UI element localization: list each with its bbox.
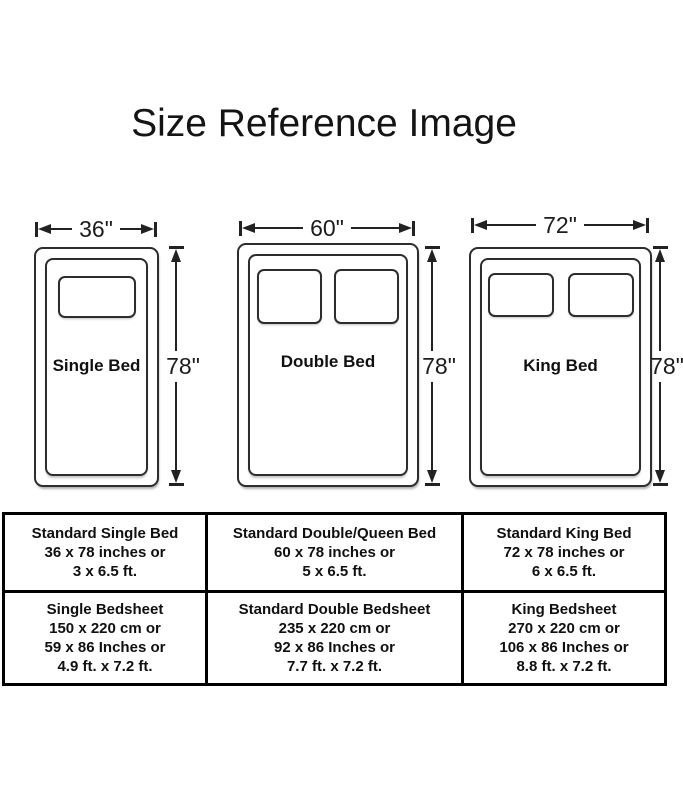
- table-cell-line: Standard King Bed: [496, 524, 631, 543]
- height-label: 78": [650, 351, 683, 382]
- width-label: 72": [536, 212, 584, 239]
- pillow-row: [47, 276, 146, 318]
- table-cell-line: 270 x 220 cm or: [508, 619, 620, 638]
- table-cell-line: 6 x 6.5 ft.: [532, 562, 596, 581]
- dim-line: [431, 382, 433, 471]
- arrowhead-down-icon: [427, 470, 437, 483]
- arrowhead-right-icon: [633, 220, 646, 230]
- size-reference-page: Size Reference Image 36" Single Bed 78": [0, 0, 683, 800]
- pillow: [58, 276, 136, 318]
- table-cell-line: Standard Single Bed: [32, 524, 179, 543]
- dim-end-cap: [412, 221, 415, 236]
- pillow: [257, 269, 322, 324]
- height-label: 78": [422, 351, 456, 382]
- table-cell-line: 59 x 86 Inches or: [45, 638, 166, 657]
- page-title: Size Reference Image: [0, 102, 648, 146]
- arrowhead-left-icon: [38, 224, 51, 234]
- table-cell-line: Standard Double/Queen Bed: [233, 524, 436, 543]
- width-dimension-arrow: 60": [239, 215, 415, 241]
- table-cell-line: 4.9 ft. x 7.2 ft.: [57, 657, 152, 676]
- dim-line: [120, 228, 141, 230]
- bed-label: Single Bed: [47, 356, 146, 376]
- height-label: 78": [166, 351, 200, 382]
- dim-line: [351, 227, 399, 229]
- mattress: Single Bed: [45, 258, 148, 476]
- arrowhead-down-icon: [171, 470, 181, 483]
- table-cell-standard-king-bed: Standard King Bed 72 x 78 inches or 6 x …: [464, 515, 664, 593]
- table-cell-king-bedsheet: King Bedsheet 270 x 220 cm or 106 x 86 I…: [464, 593, 664, 683]
- table-cell-standard-single-bed: Standard Single Bed 36 x 78 inches or 3 …: [5, 515, 208, 593]
- pillow: [334, 269, 399, 324]
- table-cell-line: Standard Double Bedsheet: [239, 600, 431, 619]
- table-cell-line: 5 x 6.5 ft.: [302, 562, 366, 581]
- table-cell-line: 72 x 78 inches or: [504, 543, 625, 562]
- height-dimension-arrow: 78": [640, 246, 680, 486]
- arrowhead-up-icon: [655, 249, 665, 262]
- dim-end-cap: [169, 483, 184, 486]
- dim-end-cap: [653, 483, 668, 486]
- dim-line: [431, 262, 433, 351]
- bed-label: Double Bed: [250, 352, 406, 372]
- size-table: Standard Single Bed 36 x 78 inches or 3 …: [2, 512, 667, 686]
- dim-line: [659, 382, 661, 471]
- arrowhead-up-icon: [427, 249, 437, 262]
- table-cell-line: King Bedsheet: [511, 600, 616, 619]
- arrowhead-right-icon: [399, 223, 412, 233]
- table-cell-line: 8.8 ft. x 7.2 ft.: [516, 657, 611, 676]
- dim-line: [584, 224, 633, 226]
- dim-line: [175, 382, 177, 471]
- table-cell-line: 106 x 86 Inches or: [499, 638, 628, 657]
- width-label: 60": [303, 215, 351, 242]
- dim-line: [659, 262, 661, 351]
- table-cell-line: 235 x 220 cm or: [279, 619, 391, 638]
- table-cell-line: 60 x 78 inches or: [274, 543, 395, 562]
- bed-frame: Single Bed: [34, 247, 159, 487]
- pillow: [568, 273, 634, 317]
- arrowhead-down-icon: [655, 470, 665, 483]
- pillow-row: [250, 269, 406, 324]
- table-cell-standard-double-queen-bed: Standard Double/Queen Bed 60 x 78 inches…: [208, 515, 464, 593]
- table-cell-line: Single Bedsheet: [47, 600, 164, 619]
- arrowhead-left-icon: [474, 220, 487, 230]
- width-label: 36": [72, 216, 120, 243]
- bed-label: King Bed: [482, 356, 639, 376]
- height-dimension-arrow: 78": [156, 246, 196, 486]
- table-cell-single-bedsheet: Single Bedsheet 150 x 220 cm or 59 x 86 …: [5, 593, 208, 683]
- width-dimension-arrow: 36": [35, 216, 157, 242]
- table-cell-line: 92 x 86 Inches or: [274, 638, 395, 657]
- dim-line: [51, 228, 72, 230]
- bed-frame: Double Bed: [237, 243, 419, 487]
- table-cell-line: 7.7 ft. x 7.2 ft.: [287, 657, 382, 676]
- dim-end-cap: [425, 483, 440, 486]
- dim-end-cap: [646, 218, 649, 233]
- mattress: Double Bed: [248, 254, 408, 476]
- pillow: [488, 273, 554, 317]
- table-cell-line: 36 x 78 inches or: [45, 543, 166, 562]
- height-dimension-arrow: 78": [412, 246, 452, 486]
- dim-line: [175, 262, 177, 351]
- bed-frame: King Bed: [469, 247, 652, 487]
- mattress: King Bed: [480, 258, 641, 476]
- dim-end-cap: [154, 222, 157, 237]
- table-cell-line: 150 x 220 cm or: [49, 619, 161, 638]
- table-cell-line: 3 x 6.5 ft.: [73, 562, 137, 581]
- arrowhead-up-icon: [171, 249, 181, 262]
- pillow-row: [482, 273, 639, 317]
- arrowhead-right-icon: [141, 224, 154, 234]
- dim-line: [487, 224, 536, 226]
- table-cell-standard-double-bedsheet: Standard Double Bedsheet 235 x 220 cm or…: [208, 593, 464, 683]
- dim-line: [255, 227, 303, 229]
- arrowhead-left-icon: [242, 223, 255, 233]
- width-dimension-arrow: 72": [471, 212, 649, 238]
